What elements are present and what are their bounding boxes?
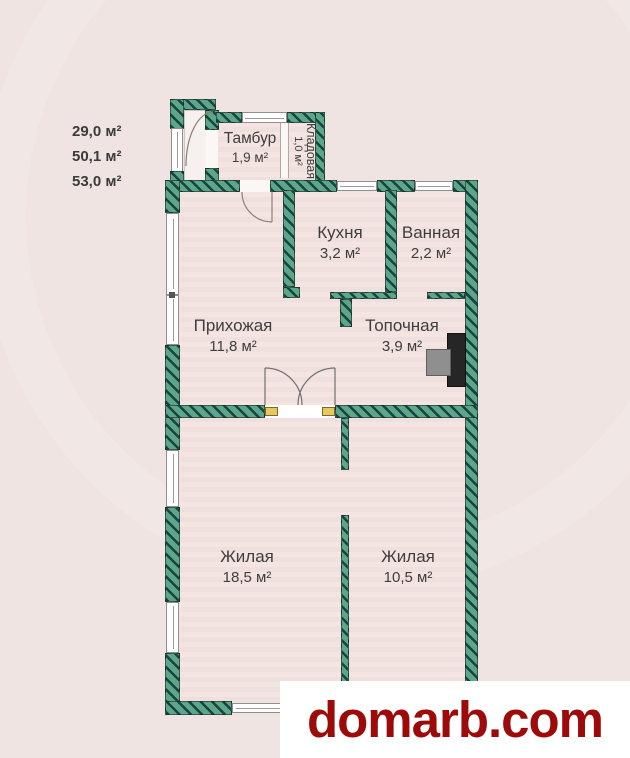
wall (283, 287, 300, 298)
room-label-bathroom: Ванная 2,2 м² (391, 223, 471, 263)
area-summary-line: 29,0 м² (72, 119, 121, 144)
room-name: Тамбур (214, 130, 286, 148)
area-summary: 29,0 м² 50,1 м² 53,0 м² (72, 119, 121, 194)
tambur-top-window (242, 112, 287, 123)
room-name: Кладовая (304, 121, 318, 181)
hall-window-lower (166, 295, 179, 345)
bathroom-top-window (415, 181, 453, 191)
wall (427, 292, 465, 299)
wall (165, 701, 232, 715)
room-area: 11,8 м² (185, 338, 281, 356)
room-label-kladovaya: Кладовая 1,0 м² (290, 121, 318, 181)
wall (165, 405, 265, 418)
room-area: 1,9 м² (214, 150, 286, 166)
wall (283, 190, 295, 287)
wall (270, 180, 337, 192)
room-name: Топочная (354, 316, 450, 336)
tambur-hall-doorway (240, 180, 270, 192)
room-name: Прихожая (185, 316, 281, 336)
floor-plan-canvas: 29,0 м² 50,1 м² 53,0 м² Тамбур 1,9 м² Кл… (0, 0, 630, 758)
room-area: 18,5 м² (199, 569, 295, 587)
brand-site-text: domarb.com (307, 690, 603, 749)
room-label-living1: Жилая 18,5 м² (199, 547, 295, 587)
wall (165, 345, 180, 450)
room-area: 2,2 м² (391, 245, 471, 263)
wall (341, 418, 349, 470)
living1-window-upper (166, 450, 179, 507)
room-name: Жилая (199, 547, 295, 567)
room-label-boiler-room: Топочная 3,9 м² (354, 316, 450, 356)
room-area: 1,0 м² (292, 121, 304, 181)
living1-window-lower (166, 602, 179, 653)
wall (165, 180, 180, 213)
room-name: Кухня (300, 223, 380, 243)
hall-window-upper (166, 213, 179, 295)
wall (330, 292, 397, 299)
room-area: 10,5 м² (360, 569, 456, 587)
wall (216, 112, 242, 123)
room-label-kitchen: Кухня 3,2 м² (300, 223, 380, 263)
wall (165, 507, 180, 602)
kitchen-top-window (337, 181, 377, 191)
room-label-hallway: Прихожая 11,8 м² (185, 316, 281, 356)
room-name: Жилая (360, 547, 456, 567)
window-junction (169, 292, 175, 298)
wall (335, 405, 478, 418)
wall (341, 515, 349, 700)
room-name: Ванная (391, 223, 471, 243)
porch-entry-door (171, 128, 183, 172)
room-area: 3,2 м² (300, 245, 380, 263)
door-jamb-left (265, 407, 278, 416)
main-floor (180, 192, 465, 701)
brand-watermark-band: domarb.com (280, 681, 630, 758)
area-summary-line: 53,0 м² (72, 169, 121, 194)
room-label-tambur: Тамбур 1,9 м² (214, 130, 286, 166)
wall (170, 99, 184, 129)
room-label-living2: Жилая 10,5 м² (360, 547, 456, 587)
area-summary-line: 50,1 м² (72, 144, 121, 169)
living1-bottom-window (232, 703, 285, 713)
room-area: 3,9 м² (354, 338, 450, 356)
door-jamb-right (322, 407, 335, 416)
wall (340, 299, 352, 327)
